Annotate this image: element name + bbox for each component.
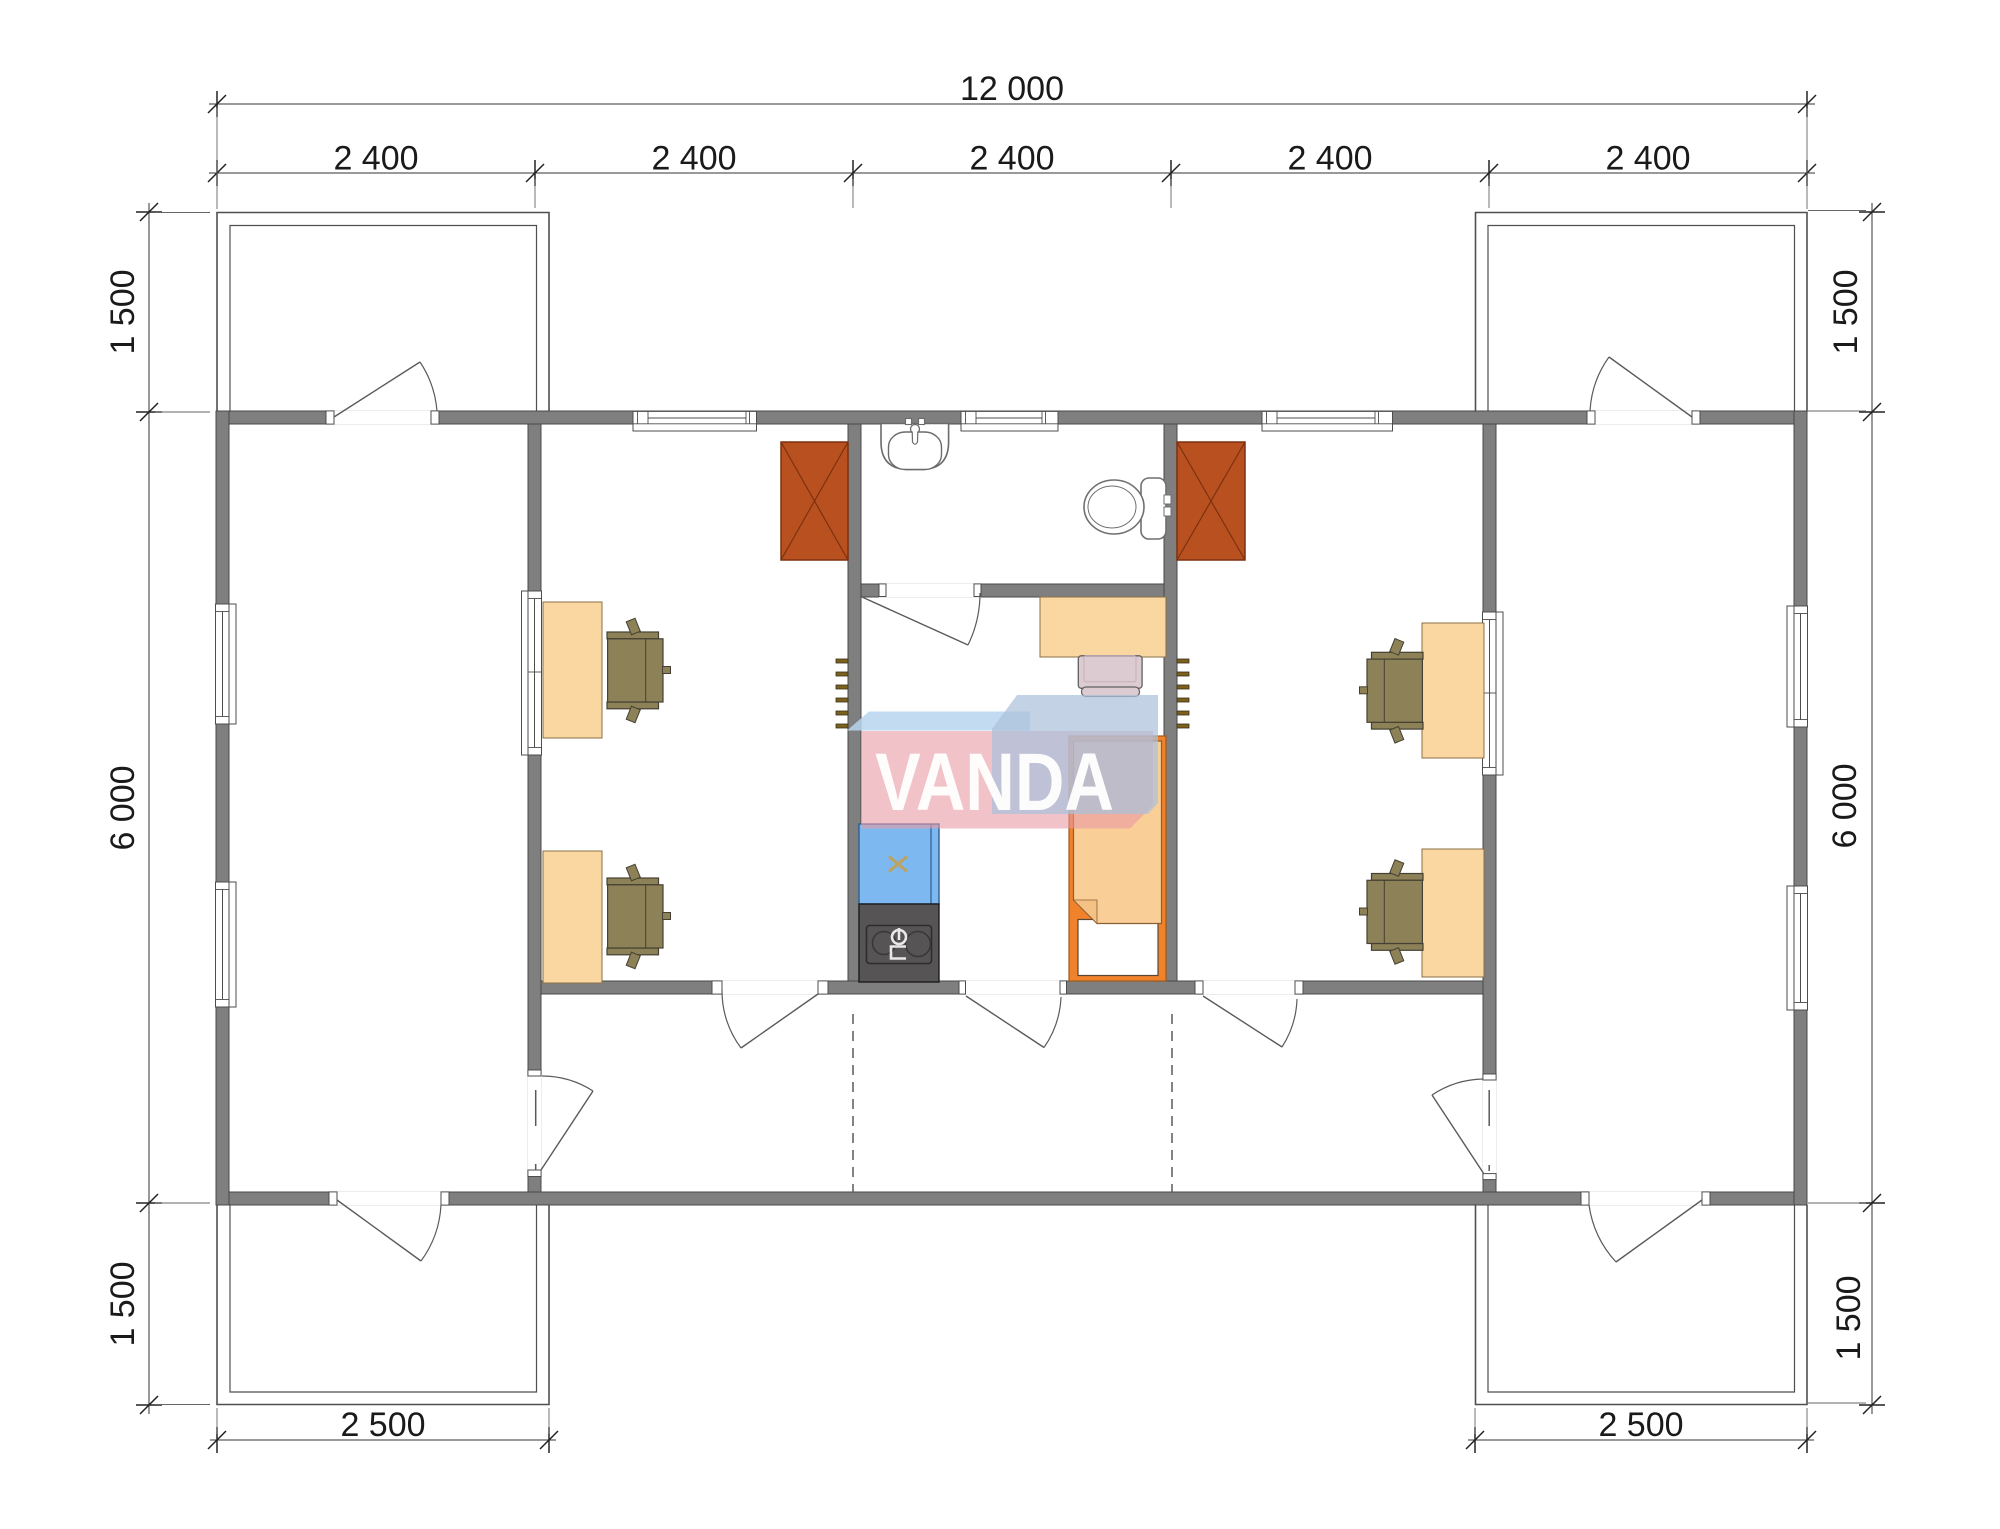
svg-text:2 400: 2 400: [969, 140, 1054, 178]
svg-text:2 400: 2 400: [651, 140, 736, 178]
svg-text:VANDA: VANDA: [875, 737, 1114, 828]
svg-text:1 500: 1 500: [104, 269, 142, 354]
svg-text:1 500: 1 500: [104, 1261, 142, 1346]
svg-text:12 000: 12 000: [960, 70, 1064, 108]
svg-text:2 400: 2 400: [1605, 140, 1690, 178]
svg-text:2 500: 2 500: [340, 1406, 425, 1444]
svg-text:2 500: 2 500: [1598, 1406, 1683, 1444]
svg-text:6 000: 6 000: [1826, 763, 1864, 848]
svg-text:1 500: 1 500: [1830, 1275, 1868, 1360]
svg-text:2 400: 2 400: [1287, 140, 1372, 178]
svg-text:1 500: 1 500: [1827, 269, 1865, 354]
svg-text:6 000: 6 000: [104, 765, 142, 850]
svg-text:2 400: 2 400: [333, 140, 418, 178]
